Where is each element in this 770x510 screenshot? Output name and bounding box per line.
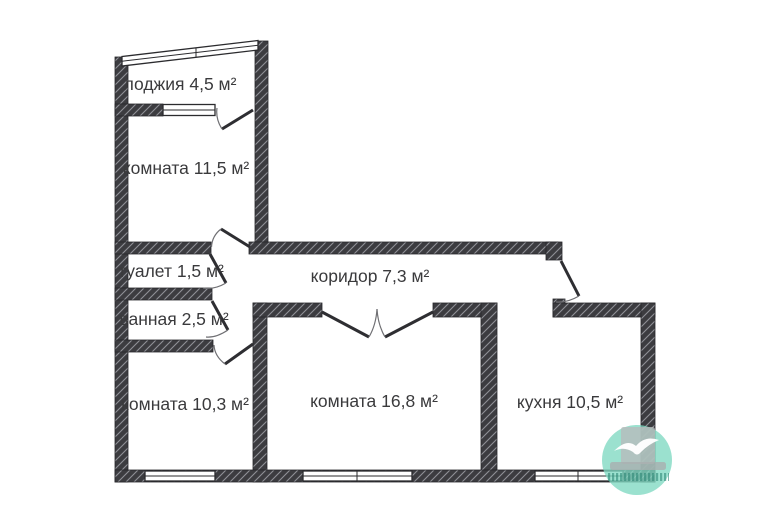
wall-room-kitchen-divider — [481, 303, 497, 482]
wall-corridor-top — [249, 242, 558, 254]
label-loggia: лоджия 4,5 м² — [124, 74, 237, 94]
wall-toilet-bath-divider — [115, 288, 212, 300]
label-bathroom: ванная 2,5 м² — [119, 309, 228, 329]
wall-left-column-right — [255, 41, 268, 253]
label-room-b: комната 10,3 м² — [121, 394, 249, 414]
window-room-c — [303, 471, 412, 481]
door-loggia — [217, 108, 253, 129]
window-loggia-top — [122, 41, 258, 67]
label-corridor: коридор 7,3 м² — [311, 266, 430, 286]
watermark-logo — [602, 425, 672, 495]
window-room-b — [145, 471, 215, 481]
laptop-base-icon — [610, 462, 666, 470]
label-room-c: комната 16,8 м² — [310, 391, 438, 411]
door-room-c-double — [322, 309, 433, 337]
floor-plan: лоджия 4,5 м² комната 11,5 м² туалет 1,5… — [0, 0, 770, 510]
door-room-b — [214, 344, 253, 364]
label-toilet: туалет 1,5 м² — [118, 261, 224, 281]
wall-loggia-room-divider — [115, 104, 163, 116]
wall-kitchen-top — [553, 303, 655, 317]
wall-corridor-bottom-left — [253, 303, 322, 317]
wall-room-toilet-divider — [115, 242, 211, 254]
wall-rooms-divider-vertical — [253, 303, 267, 482]
watermark-text — [607, 473, 669, 481]
door-entrance — [556, 261, 579, 302]
door-room-a — [212, 229, 251, 247]
wall-corridor-top-stub — [546, 242, 562, 260]
window-room-a-loggia — [163, 105, 215, 116]
label-room-a: комната 11,5 м² — [123, 158, 250, 178]
wall-bath-bottom — [115, 340, 213, 352]
label-kitchen: кухня 10,5 м² — [517, 392, 623, 412]
